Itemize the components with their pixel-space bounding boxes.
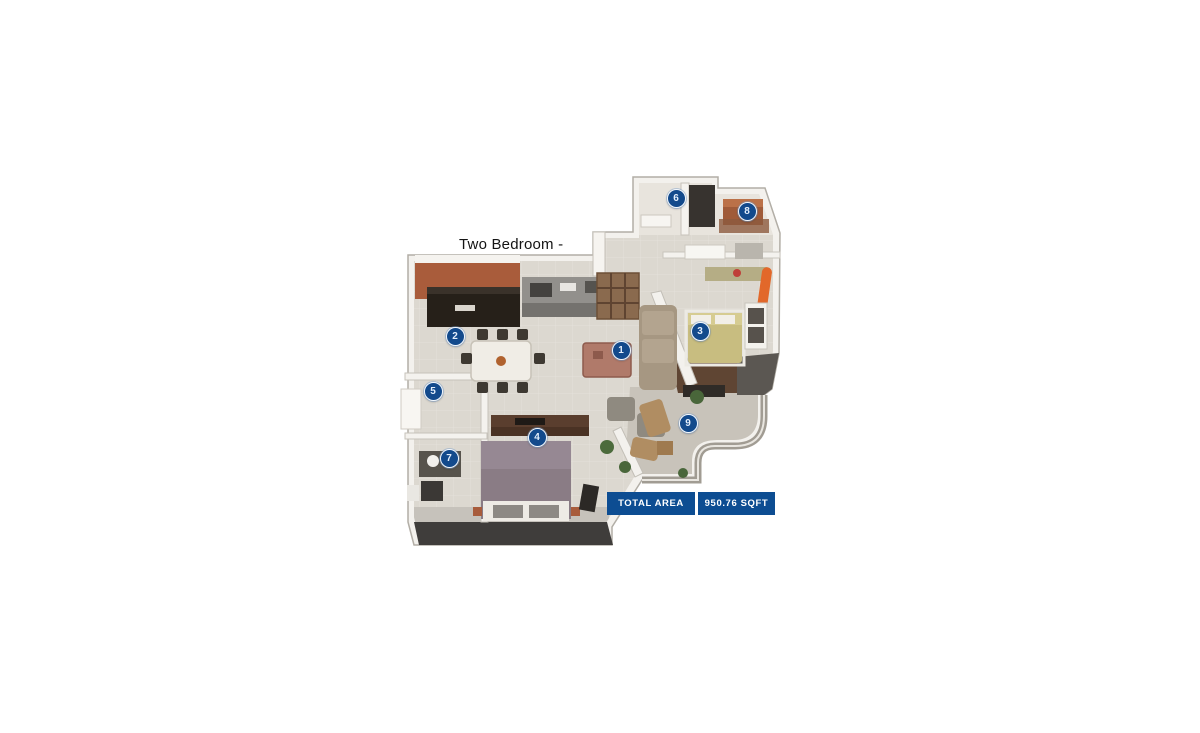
total-area-bar: TOTAL AREA 950.76 SQFT bbox=[607, 492, 775, 515]
armchair bbox=[607, 397, 635, 421]
room-marker-3: 3 bbox=[691, 322, 710, 341]
table-centerpiece bbox=[496, 356, 506, 366]
bathroom-divider-wall bbox=[405, 433, 487, 439]
entry-lattice-shelf bbox=[597, 273, 639, 319]
room8-floor bbox=[719, 219, 769, 233]
room-marker-5: 5 bbox=[424, 382, 443, 401]
entry-wall bbox=[593, 232, 605, 276]
master-bed-fold bbox=[481, 441, 571, 469]
bed3-pillow-2 bbox=[715, 315, 735, 324]
sofa-cushion bbox=[642, 311, 674, 335]
bedroom3-wardrobe bbox=[683, 385, 725, 397]
room-marker-1: 1 bbox=[612, 341, 631, 360]
bath-tiles bbox=[735, 243, 763, 259]
floor-pot-2 bbox=[571, 507, 580, 516]
base-plinth bbox=[414, 522, 613, 545]
coffee-table-item bbox=[593, 351, 603, 359]
red-decor bbox=[733, 269, 741, 277]
bathroom-sink bbox=[427, 455, 439, 467]
plan-title: Two Bedroom - bbox=[459, 236, 563, 253]
stove bbox=[530, 283, 552, 297]
room6-counter bbox=[641, 215, 671, 227]
floor-pot bbox=[473, 507, 482, 516]
room-marker-7: 7 bbox=[440, 449, 459, 468]
footboard-panel-2 bbox=[529, 505, 559, 518]
kitchen-top-wall bbox=[415, 255, 520, 263]
dresser-tv bbox=[515, 418, 545, 425]
footboard-panel bbox=[493, 505, 523, 518]
room-marker-2: 2 bbox=[446, 327, 465, 346]
balcony-plant-2 bbox=[619, 461, 631, 473]
balcony-plant bbox=[690, 390, 704, 404]
sofa-cushion-2 bbox=[642, 339, 674, 363]
kitchen-counter-top bbox=[427, 287, 520, 294]
indoor-plant bbox=[600, 440, 614, 454]
page-background: Two Bedroom - 123456789 TOTAL AREA 950.7… bbox=[0, 0, 1200, 733]
shelf-cushion bbox=[748, 308, 764, 324]
balcony-plant-3 bbox=[678, 468, 688, 478]
counter-sink bbox=[560, 283, 576, 291]
room-marker-9: 9 bbox=[679, 414, 698, 433]
kitchen-sink bbox=[455, 305, 475, 311]
washer bbox=[421, 481, 443, 501]
toilet bbox=[407, 485, 419, 501]
bath-tub bbox=[685, 245, 725, 259]
wicker-table bbox=[657, 441, 673, 455]
room-marker-8: 8 bbox=[738, 202, 757, 221]
total-area-label: TOTAL AREA bbox=[607, 492, 695, 515]
upper-cabinet bbox=[689, 185, 715, 227]
room-marker-4: 4 bbox=[528, 428, 547, 447]
shelf-cushion-2 bbox=[748, 327, 764, 343]
room-marker-6: 6 bbox=[667, 189, 686, 208]
corridor-cabinet bbox=[401, 389, 421, 429]
total-area-value: 950.76 SQFT bbox=[698, 492, 775, 515]
